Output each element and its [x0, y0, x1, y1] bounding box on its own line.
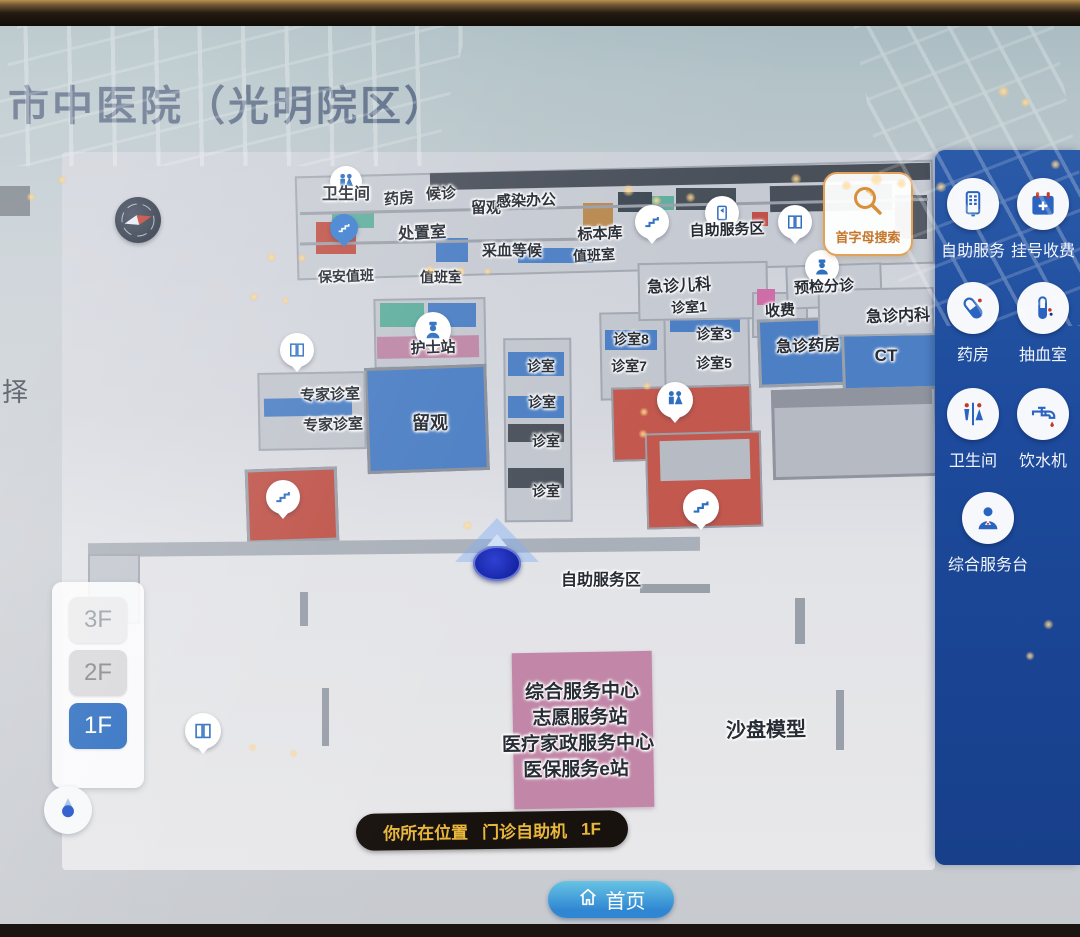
door-pin-icon [280, 333, 314, 367]
map-room [659, 439, 750, 481]
sidebar-item-pharmacy[interactable]: 药房 [938, 282, 1008, 365]
room-label: 诊室 [532, 431, 560, 451]
screen-bezel-top [0, 0, 1080, 26]
stairs-pin-icon [635, 205, 669, 239]
room-label: 保安值班 [318, 265, 375, 287]
search-button-label: 首字母搜索 [835, 227, 900, 246]
room-label: 急诊儿科 [646, 270, 711, 297]
room-label: 诊室 [527, 356, 555, 376]
room-label: 急诊内科 [866, 301, 931, 327]
map-wall [300, 592, 308, 626]
compass-icon [115, 197, 161, 243]
room-label: 专家诊室 [300, 382, 361, 405]
room-label: 采血等候 [482, 240, 542, 261]
test-tube-icon [1017, 282, 1069, 334]
room-label: 留观 [412, 409, 448, 435]
room-label: 诊室1 [671, 296, 707, 317]
service-center-line: 医疗家政服务中心 [502, 727, 654, 757]
room-label: 处置室 [397, 218, 446, 244]
calendar-plus-icon [1017, 178, 1069, 230]
sidebar-item-label: 自助服务 [938, 237, 1008, 261]
left-edge-text: 择 [2, 372, 28, 409]
sidebar-item-restroom[interactable]: 卫生间 [938, 388, 1008, 471]
room-label: CT [875, 346, 898, 366]
door-pin-icon [778, 205, 812, 239]
sidebar-item-label: 挂号收费 [1008, 237, 1078, 261]
home-button-label: 首页 [606, 885, 646, 914]
service-center-line: 医保服务e站 [523, 754, 629, 783]
sidebar-item-label: 抽血室 [1008, 341, 1078, 365]
room-label: 收费 [764, 299, 795, 322]
sidebar-item-service-desk[interactable]: 综合服务台 [938, 492, 1038, 575]
room-label: 标本库 [577, 221, 623, 244]
room-label: 急诊药房 [776, 331, 841, 357]
restroom-icon [947, 388, 999, 440]
sidebar-item-label: 饮水机 [1008, 447, 1078, 471]
map-wall [88, 537, 700, 557]
sidebar-item-water-dispenser[interactable]: 饮水机 [1008, 388, 1078, 471]
location-pill-place: 门诊自助机 [482, 817, 567, 843]
room-label: 值班室 [573, 244, 616, 266]
room-label: 感染办公 [496, 188, 557, 211]
home-button[interactable]: 首页 [548, 881, 674, 918]
glare-dot [998, 86, 1009, 97]
room-label: 专家诊室 [303, 412, 364, 435]
map-wall [640, 584, 710, 593]
room-label: 卫生间 [322, 180, 370, 204]
location-pill-floor: 1F [581, 819, 601, 839]
stairs-pin-icon [683, 489, 719, 525]
current-location-pill: 你所在位置 门诊自助机 1F [356, 810, 628, 851]
water-faucet-icon [1017, 388, 1069, 440]
initial-search-button[interactable]: 首字母搜索 [823, 172, 913, 256]
current-location-marker [473, 546, 521, 581]
screen-bezel-bottom [0, 924, 1080, 937]
floor-selector: 3F 2F 1F [52, 582, 144, 788]
service-center-line: 综合服务中心 [525, 676, 639, 705]
sidebar-item-registration-fees[interactable]: 挂号收费 [1008, 178, 1078, 261]
room-label: 护士站 [410, 336, 456, 359]
photo-artifact [0, 186, 30, 216]
glare-dot [1021, 98, 1030, 107]
search-icon [850, 183, 886, 224]
stairs-pin-icon [266, 480, 300, 514]
locate-button[interactable] [44, 786, 92, 834]
map-wall [836, 690, 844, 750]
room-label: 药房 [383, 186, 415, 210]
home-icon [577, 886, 599, 914]
room-label: 候诊 [425, 182, 456, 205]
room-label: 自助服务区 [561, 566, 641, 590]
door-pin-icon [185, 713, 221, 749]
restroom-pin-icon [657, 382, 693, 418]
locate-icon [55, 795, 81, 826]
room-label: 诊室 [532, 481, 560, 501]
room-label: 诊室3 [696, 324, 732, 344]
room-label: 诊室 [528, 392, 556, 412]
kiosk-icon [947, 178, 999, 230]
stairs-pin-icon [330, 214, 358, 242]
room-label: 值班室 [420, 267, 462, 287]
sidebar-item-self-service[interactable]: 自助服务 [938, 178, 1008, 261]
location-arrow [487, 534, 507, 546]
sand-table-label: 沙盘模型 [726, 713, 806, 743]
page-title: 市中医院（光明院区） [8, 72, 448, 132]
room-label: 诊室5 [696, 353, 732, 373]
sidebar-item-label: 药房 [938, 341, 1008, 365]
kiosk-screen: 市中医院（光明院区） 择 [0, 0, 1080, 937]
quick-nav-sidebar: 自助服务 挂号收费 药房 抽血室 卫生间 [935, 150, 1080, 865]
room-label: 自助服务区 [689, 217, 765, 241]
map-wall [795, 598, 805, 644]
capsule-icon [947, 282, 999, 334]
floor-button-1f[interactable]: 1F [69, 703, 127, 749]
floor-button-2f[interactable]: 2F [69, 650, 127, 696]
floor-button-3f[interactable]: 3F [69, 597, 127, 643]
concierge-icon [962, 492, 1014, 544]
location-pill-prefix: 你所在位置 [383, 818, 468, 844]
room-label: 预检分诊 [793, 274, 854, 298]
sidebar-item-label: 卫生间 [938, 447, 1008, 471]
sidebar-item-label: 综合服务台 [938, 551, 1038, 575]
map-wall [322, 688, 329, 746]
service-center-line: 志愿服务站 [532, 702, 627, 731]
room-label: 诊室7 [611, 356, 647, 376]
room-label: 诊室8 [613, 329, 649, 349]
sidebar-item-blood-draw[interactable]: 抽血室 [1008, 282, 1078, 365]
